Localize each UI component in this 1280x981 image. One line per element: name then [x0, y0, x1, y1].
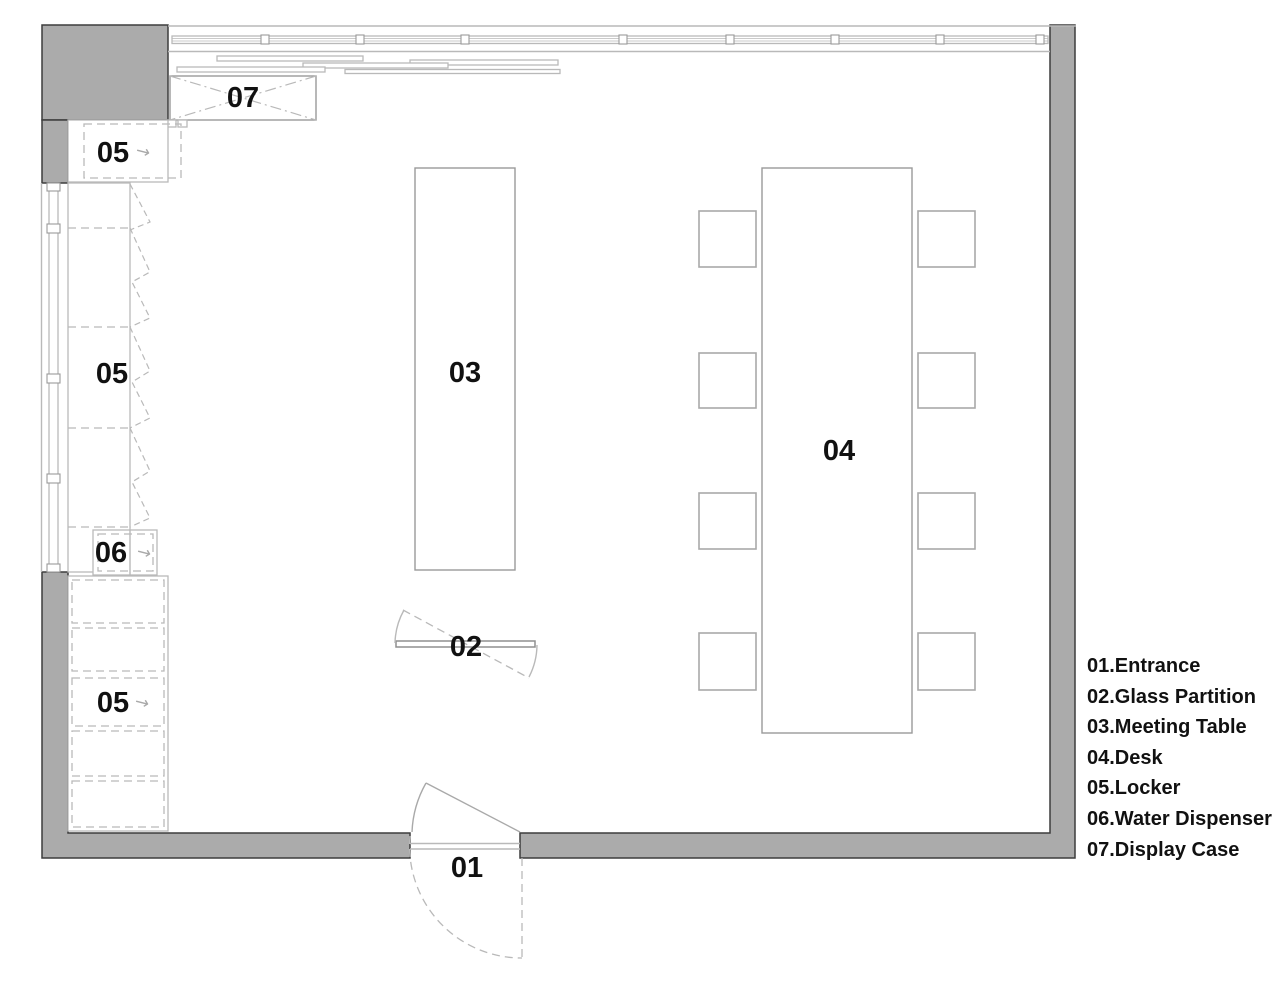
wall-left-upper — [42, 120, 68, 183]
chair — [699, 211, 756, 267]
glazing-track — [172, 36, 1048, 44]
label-entrance: 01 — [451, 852, 483, 884]
legend-item-display-case: 07.Display Case — [1087, 835, 1272, 866]
locker-middle: 05 — [68, 183, 150, 572]
legend-item-locker: 05.Locker — [1087, 773, 1272, 804]
legend-item-glass-partition: 02.Glass Partition — [1087, 682, 1272, 713]
partition-swing-arc — [395, 610, 404, 643]
left-glass-wall — [42, 183, 61, 572]
glass-mullion — [47, 183, 60, 191]
chair — [699, 633, 756, 690]
legend-item-water-dispenser: 06.Water Dispenser — [1087, 804, 1272, 835]
label-locker-top: 05 — [97, 137, 129, 169]
wall-corner-block — [42, 25, 168, 120]
chair — [918, 211, 975, 267]
legend-item-entrance: 01.Entrance — [1087, 651, 1272, 682]
legend-item-meeting-table: 03.Meeting Table — [1087, 712, 1272, 743]
glass-mullion — [47, 374, 60, 383]
glass-mullion — [47, 474, 60, 483]
label-glass-partition: 02 — [450, 631, 482, 663]
label-desk: 04 — [823, 435, 855, 467]
floor-plan-page: 07 05 → — [0, 0, 1280, 981]
label-meeting-table: 03 — [449, 357, 481, 389]
chair — [918, 493, 975, 549]
meeting-table: 03 — [415, 168, 515, 570]
chair — [918, 633, 975, 690]
door-leaf-inner — [426, 783, 520, 832]
label-display-case: 07 — [227, 82, 259, 114]
chair — [699, 493, 756, 549]
door-swing-inner — [412, 783, 426, 832]
display-case: 07 — [167, 76, 316, 127]
chair — [699, 353, 756, 408]
legend: 01.Entrance 02.Glass Partition 03.Meetin… — [1087, 651, 1272, 865]
glass-mullion — [47, 224, 60, 233]
locker-top: 05 → — [68, 120, 181, 182]
glass-mullion — [47, 564, 60, 572]
locker-bottom: 05 → — [68, 576, 168, 831]
water-dispenser: 06 → — [93, 530, 157, 575]
label-locker-middle: 05 — [96, 358, 128, 390]
partition-swing-arc — [529, 645, 537, 677]
chair — [918, 353, 975, 408]
wall-shelf-boards — [177, 56, 560, 74]
glass-partition: 02 — [395, 610, 537, 678]
label-water-dispenser: 06 — [95, 537, 127, 569]
entrance-door: 01 — [410, 783, 522, 960]
top-window-band — [168, 26, 1076, 52]
desk-group: 04 — [699, 168, 975, 733]
locker-doors — [130, 184, 150, 527]
label-locker-bottom: 05 — [97, 687, 129, 719]
legend-item-desk: 04.Desk — [1087, 743, 1272, 774]
